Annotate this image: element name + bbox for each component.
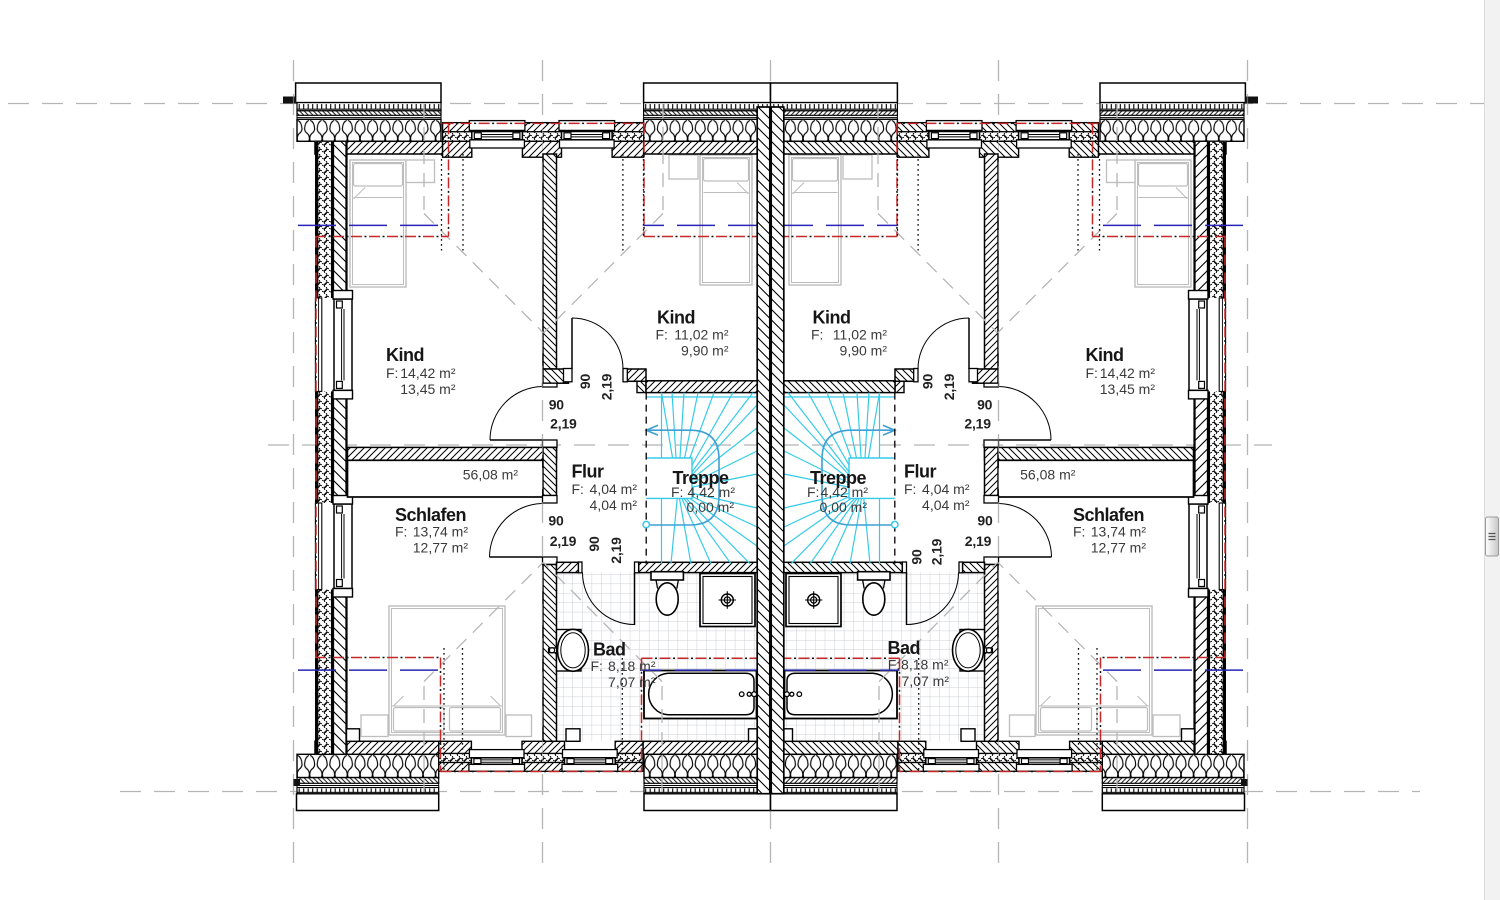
svg-text:F:: F: (386, 365, 398, 381)
svg-text:13,74 m²: 13,74 m² (413, 524, 469, 540)
svg-text:90: 90 (548, 513, 564, 529)
svg-text:11,02 m²: 11,02 m² (674, 327, 729, 343)
svg-text:Schlafen: Schlafen (395, 505, 466, 525)
svg-text:2,19: 2,19 (941, 373, 957, 400)
svg-text:Kind: Kind (813, 308, 851, 328)
svg-text:8,18 m²: 8,18 m² (608, 658, 656, 674)
svg-text:90: 90 (977, 397, 993, 413)
svg-text:Schlafen: Schlafen (1073, 505, 1144, 525)
svg-text:Kind: Kind (1086, 345, 1124, 365)
svg-text:90: 90 (586, 536, 602, 552)
svg-text:Flur: Flur (572, 462, 604, 482)
svg-text:56,08 m²: 56,08 m² (463, 467, 519, 483)
svg-text:Bad: Bad (593, 639, 626, 659)
svg-text:0,00 m²: 0,00 m² (687, 499, 735, 515)
svg-text:90: 90 (549, 397, 565, 413)
svg-text:Bad: Bad (888, 638, 921, 658)
svg-text:11,02 m²: 11,02 m² (833, 327, 888, 343)
svg-text:7,07 m²: 7,07 m² (608, 674, 656, 690)
svg-text:4,04 m²: 4,04 m² (922, 497, 970, 513)
svg-text:F:: F: (671, 484, 683, 500)
svg-text:F:: F: (888, 657, 900, 673)
svg-text:2,19: 2,19 (608, 537, 624, 564)
svg-text:F:: F: (591, 658, 603, 674)
svg-text:56,08 m²: 56,08 m² (1020, 467, 1076, 483)
svg-text:F:: F: (807, 484, 819, 500)
svg-text:0,00 m²: 0,00 m² (820, 499, 868, 515)
svg-text:9,90 m²: 9,90 m² (681, 343, 729, 359)
svg-text:90: 90 (920, 374, 936, 390)
svg-text:7,07 m²: 7,07 m² (902, 673, 950, 689)
svg-text:12,77 m²: 12,77 m² (413, 540, 469, 556)
svg-text:4,04 m²: 4,04 m² (590, 481, 638, 497)
svg-text:2,19: 2,19 (599, 373, 615, 400)
svg-text:2,19: 2,19 (550, 533, 577, 549)
svg-text:F:: F: (572, 481, 584, 497)
svg-text:Kind: Kind (386, 345, 424, 365)
svg-text:14,42 m²: 14,42 m² (400, 365, 456, 381)
svg-text:2,19: 2,19 (965, 533, 992, 549)
svg-text:4,04 m²: 4,04 m² (922, 481, 970, 497)
svg-text:13,45 m²: 13,45 m² (400, 381, 456, 397)
svg-text:F:: F: (1086, 365, 1098, 381)
svg-text:8,18 m²: 8,18 m² (901, 657, 949, 673)
svg-text:F:: F: (395, 524, 407, 540)
svg-text:2,19: 2,19 (550, 416, 577, 432)
svg-text:Kind: Kind (657, 308, 695, 328)
svg-text:90: 90 (909, 549, 925, 565)
svg-text:2,19: 2,19 (929, 538, 945, 565)
svg-text:2,19: 2,19 (964, 416, 991, 432)
svg-text:F:: F: (811, 327, 823, 343)
svg-text:F:: F: (656, 327, 668, 343)
svg-text:F:: F: (904, 481, 916, 497)
svg-text:F:: F: (1073, 524, 1085, 540)
svg-text:90: 90 (977, 513, 993, 529)
svg-text:90: 90 (577, 374, 593, 390)
svg-text:13,45 m²: 13,45 m² (1100, 381, 1156, 397)
svg-text:4,42 m²: 4,42 m² (688, 484, 736, 500)
svg-text:9,90 m²: 9,90 m² (840, 343, 888, 359)
svg-text:14,42 m²: 14,42 m² (1100, 365, 1156, 381)
svg-text:4,42 m²: 4,42 m² (821, 484, 869, 500)
svg-text:12,77 m²: 12,77 m² (1091, 540, 1147, 556)
svg-text:13,74 m²: 13,74 m² (1091, 524, 1147, 540)
svg-text:4,04 m²: 4,04 m² (590, 497, 638, 513)
svg-text:Flur: Flur (904, 462, 936, 482)
